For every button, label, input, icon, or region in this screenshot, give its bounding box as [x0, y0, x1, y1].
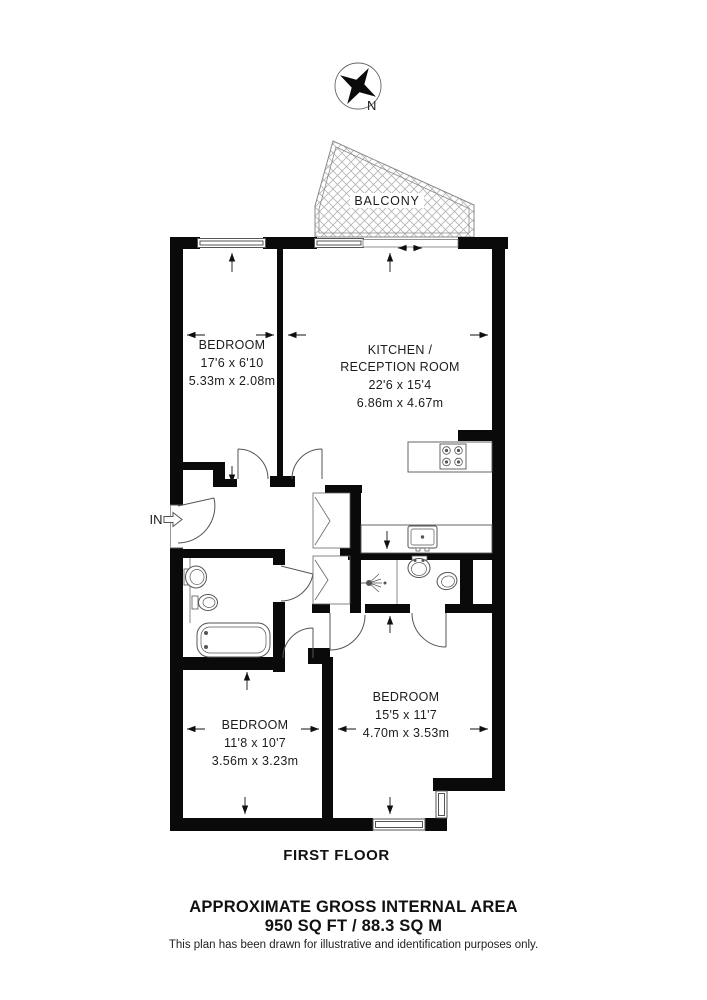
entrance-door — [178, 498, 215, 543]
wall-closet-top — [325, 485, 362, 493]
wall-right — [492, 237, 505, 791]
kitchen-name-line2: RECEPTION ROOM — [340, 360, 459, 374]
kitchen-fixtures — [361, 442, 492, 553]
label-bedroom-bottom-left: BEDROOM 11'8 x 10'7 3.56m x 3.23m — [212, 718, 299, 768]
label-bedroom-bottom-right: BEDROOM 15'5 x 11'7 4.70m x 3.53m — [363, 690, 450, 740]
wall-divider-cap — [270, 476, 295, 487]
floor-label: FIRST FLOOR — [0, 847, 673, 864]
balcony-door-threshold — [363, 240, 458, 248]
wall-bathroom-right-a — [273, 549, 285, 565]
ensuite-fixtures — [361, 556, 459, 604]
bedroom-right-metric: 4.70m x 3.53m — [363, 726, 450, 740]
wall-bottom-1 — [183, 818, 373, 831]
bathtub-tap-1 — [205, 632, 208, 635]
bathroom-toilet-cistern — [192, 596, 198, 609]
kitchen-sink-tap-1 — [416, 548, 420, 551]
ensuite-basin-bowl — [412, 563, 427, 576]
bedroom-left-metric: 3.56m x 3.23m — [212, 754, 299, 768]
wall-bed1-bottom-c — [213, 479, 237, 487]
hob-dot-4 — [457, 461, 459, 463]
bedroom-right-imperial: 15'5 x 11'7 — [375, 708, 437, 722]
wall-duct — [458, 430, 492, 441]
kitchen-imperial: 22'6 x 15'4 — [369, 378, 432, 392]
balcony: BALCONY — [315, 141, 474, 237]
door-bedroom-top — [238, 449, 268, 479]
wall-bed3-top-c — [445, 604, 492, 613]
wall-step — [433, 778, 505, 791]
kitchen-sink-drain — [421, 536, 423, 538]
window-bedroom-top-inner — [200, 241, 263, 245]
wall-bathroom-top — [170, 549, 285, 558]
door-kitchen — [292, 449, 322, 479]
wall-ensuite-nook — [460, 558, 473, 604]
wall-bathroom-bottom — [170, 657, 285, 670]
bathroom-fixtures — [184, 558, 270, 657]
area-title: APPROXIMATE GROSS INTERNAL AREA — [0, 898, 707, 917]
door-ensuite — [412, 613, 446, 647]
door-bedroom-right — [330, 613, 365, 650]
bathroom-basin-bowl — [190, 570, 204, 585]
wall-bed3-top-b — [365, 604, 410, 613]
shower-spray-icon — [369, 574, 382, 592]
label-kitchen-reception: KITCHEN / RECEPTION ROOM 22'6 x 15'4 6.8… — [340, 343, 459, 410]
balcony-label: BALCONY — [354, 194, 419, 208]
closet-top-door — [315, 497, 330, 545]
window-kitchen-inner — [317, 241, 361, 245]
bedroom-top-name: BEDROOM — [199, 338, 266, 352]
kitchen-sink-tap-2 — [425, 548, 429, 551]
window-bedroom-right-bottom-inner — [376, 822, 423, 828]
ensuite-basin-tap-1 — [414, 560, 416, 562]
label-bedroom-top: BEDROOM 17'6 x 6'10 5.33m x 2.08m — [189, 338, 276, 388]
wall-left-upper — [170, 237, 183, 505]
entrance-label: IN — [150, 512, 163, 527]
area-value: 950 SQ FT / 88.3 SQ M — [0, 917, 707, 936]
north-label: N — [367, 98, 376, 113]
bathroom-toilet-bowl — [203, 598, 215, 608]
window-step-inner — [439, 794, 445, 816]
wall-bed-divider — [322, 657, 333, 818]
closet-bottom-door — [315, 560, 328, 600]
bathtub-inner — [201, 627, 266, 653]
shower-drain-dot — [384, 582, 386, 584]
wall-top-2 — [263, 237, 317, 249]
ensuite-basin-tap-2 — [422, 560, 424, 562]
compass-icon: N — [335, 63, 381, 113]
wall-bed3-top-a — [312, 604, 330, 613]
bedroom-top-metric: 5.33m x 2.08m — [189, 374, 276, 388]
wall-bed1-kitchen — [277, 249, 283, 476]
bathtub-tap-2 — [205, 646, 208, 649]
disclaimer: This plan has been drawn for illustrativ… — [0, 939, 707, 951]
wall-bottom-2 — [425, 818, 447, 831]
floorplan-page: BALCONY N — [0, 0, 707, 1000]
entrance-arrow-icon — [164, 513, 182, 527]
door-bathroom — [281, 566, 313, 601]
bedroom-left-name: BEDROOM — [222, 718, 289, 732]
wall-left-lower — [170, 548, 183, 831]
bedroom-right-name: BEDROOM — [373, 690, 440, 704]
closet-bottom — [313, 556, 350, 604]
bedroom-left-imperial: 11'8 x 10'7 — [224, 736, 286, 750]
hob-dot-2 — [457, 449, 459, 451]
bedroom-top-imperial: 17'6 x 6'10 — [201, 356, 264, 370]
balcony-outline — [315, 141, 474, 237]
entrance: IN — [150, 498, 215, 548]
hob-dot-1 — [445, 449, 447, 451]
hob-dot-3 — [445, 461, 447, 463]
kitchen-name-line1: KITCHEN / — [368, 343, 433, 357]
kitchen-metric: 6.86m x 4.67m — [357, 396, 444, 410]
